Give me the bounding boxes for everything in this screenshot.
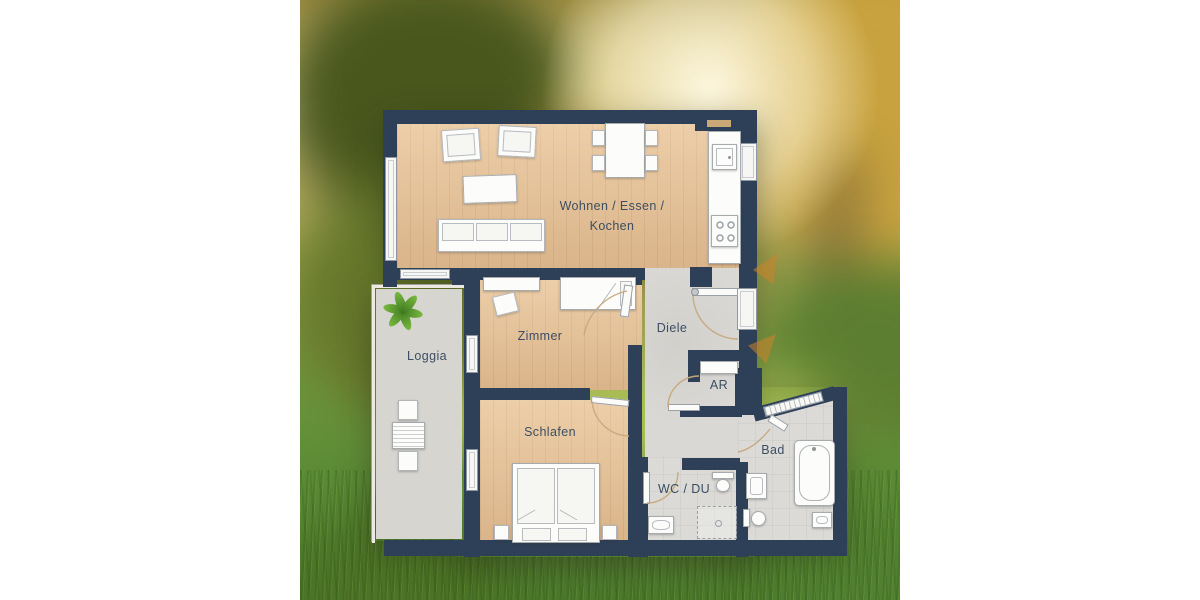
room-label-zimmer: Zimmer xyxy=(518,326,563,346)
mattress xyxy=(557,468,595,524)
wall-segment xyxy=(464,268,480,557)
wall-segment xyxy=(688,350,700,382)
ar-shelf xyxy=(700,361,738,374)
mattress xyxy=(517,468,555,524)
dining-table xyxy=(605,123,645,178)
room-label-bad: Bad xyxy=(761,440,784,460)
bathtub-faucet xyxy=(812,447,816,451)
floor-plan-page: Wohnen / Essen / Kochen Zimmer Diele Log… xyxy=(0,0,1200,600)
wc-door-leaf xyxy=(643,472,650,504)
room-label-living-line2: Kochen xyxy=(590,219,635,233)
room-label-diele: Diele xyxy=(657,318,688,338)
nightstand xyxy=(602,525,617,540)
dining-chair xyxy=(645,155,658,171)
bed-pillow xyxy=(558,528,587,541)
window-kitchen-right xyxy=(739,143,757,181)
loggia-table xyxy=(392,422,425,449)
fridge-handle xyxy=(728,156,731,159)
bathtub xyxy=(794,440,835,506)
sofa-cushion xyxy=(442,223,474,241)
wc-shower xyxy=(697,506,737,539)
wall-segment xyxy=(384,540,847,556)
armchair-cushion xyxy=(502,130,531,152)
blanket-fold xyxy=(560,510,578,521)
ar-door-leaf xyxy=(668,404,700,411)
sofa-cushion xyxy=(510,223,542,241)
coffee-table xyxy=(463,174,518,204)
window-living-loggia xyxy=(400,269,450,279)
bathtub-basin xyxy=(799,445,830,501)
wc-toilet-tank xyxy=(712,472,734,479)
bad-sink xyxy=(812,512,832,528)
loggia-chair xyxy=(398,400,418,420)
window-schlafen-loggia xyxy=(466,449,478,491)
sink-basin xyxy=(816,516,828,524)
sofa-cushion xyxy=(476,223,508,241)
entrance-door-panel xyxy=(737,288,757,330)
room-label-ar: AR xyxy=(710,375,728,395)
blanket-fold xyxy=(595,283,616,313)
sink-basin xyxy=(652,520,670,530)
desk xyxy=(483,277,540,291)
room-label-living-line1: Wohnen / Essen / xyxy=(560,199,665,213)
entrance-door-leaf xyxy=(692,288,738,296)
nightstand xyxy=(494,525,509,540)
armchair xyxy=(497,125,537,158)
blanket-fold xyxy=(518,510,536,521)
room-label-schlafen: Schlafen xyxy=(524,422,576,442)
bed-pillow xyxy=(522,528,551,541)
wc-toilet-bowl xyxy=(716,479,730,492)
fridge xyxy=(712,144,737,170)
loggia-chair xyxy=(398,451,418,471)
wall-segment xyxy=(690,267,712,287)
tray-inner xyxy=(750,477,763,495)
floor-plan: Wohnen / Essen / Kochen Zimmer Diele Log… xyxy=(370,95,852,561)
wall-segment xyxy=(467,388,590,400)
wc-sink xyxy=(648,516,674,534)
wall-niche xyxy=(707,120,733,127)
room-label-living: Wohnen / Essen / Kochen xyxy=(560,196,665,236)
dining-chair xyxy=(592,130,605,146)
dining-chair xyxy=(645,130,658,146)
shower-drain xyxy=(715,520,722,527)
armchair xyxy=(441,128,481,163)
double-bed xyxy=(512,463,600,543)
room-label-loggia: Loggia xyxy=(407,346,447,366)
room-label-wc-du: WC / DU xyxy=(658,479,710,499)
armchair-cushion xyxy=(446,133,475,157)
wall-segment xyxy=(833,387,847,543)
wall-segment xyxy=(682,458,740,470)
bad-shower-tray xyxy=(746,473,767,499)
window-zimmer-loggia xyxy=(466,335,478,373)
sofa xyxy=(438,219,545,252)
stove xyxy=(711,215,738,247)
plant-icon xyxy=(388,295,424,331)
dining-chair xyxy=(592,155,605,171)
bad-toilet-bowl xyxy=(751,511,766,526)
window-living-left xyxy=(385,157,397,261)
bad-toilet-tank xyxy=(743,509,750,527)
